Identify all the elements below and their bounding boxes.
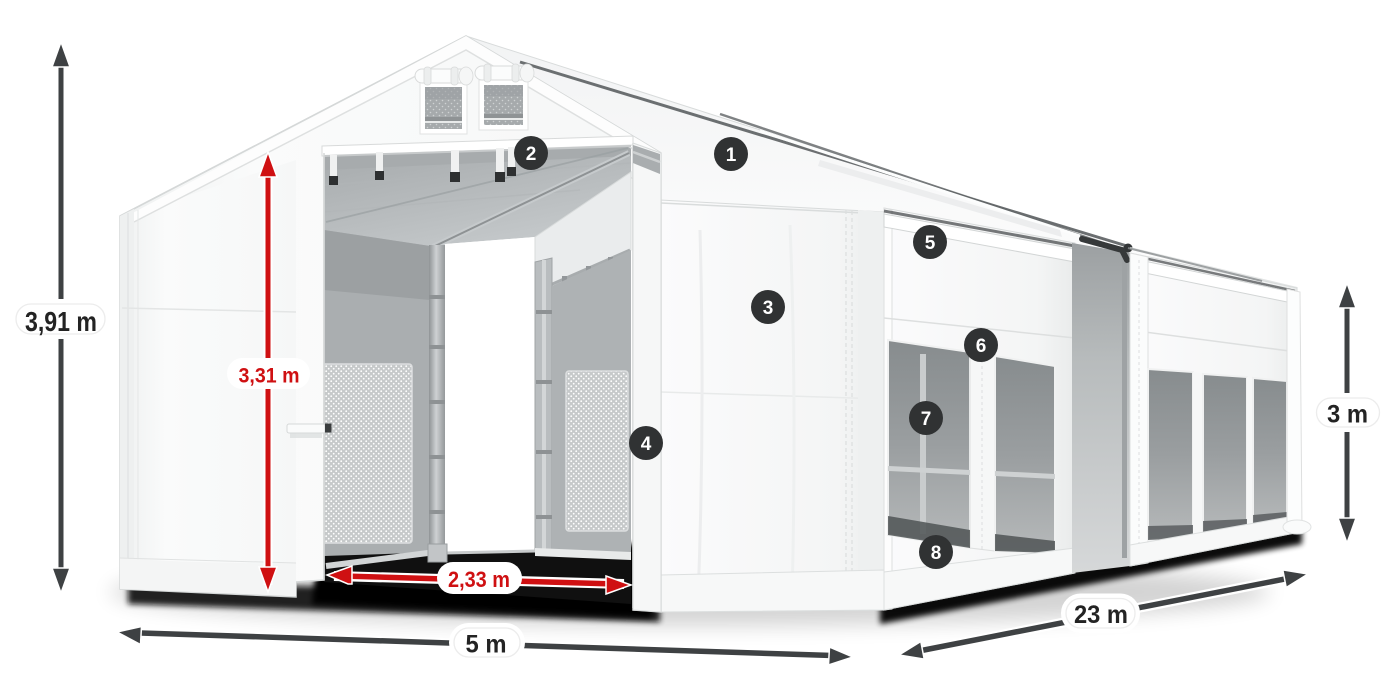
- svg-text:4: 4: [641, 434, 652, 455]
- svg-text:2: 2: [526, 144, 537, 165]
- svg-text:23 m: 23 m: [1074, 601, 1128, 629]
- svg-text:3,91 m: 3,91 m: [25, 306, 97, 337]
- svg-text:3 m: 3 m: [1327, 401, 1368, 429]
- svg-text:3: 3: [763, 298, 774, 319]
- svg-text:5: 5: [925, 233, 936, 254]
- svg-text:6: 6: [976, 336, 987, 357]
- svg-text:5 m: 5 m: [466, 631, 507, 659]
- svg-text:8: 8: [931, 543, 942, 564]
- svg-text:2,33 m: 2,33 m: [448, 567, 510, 592]
- svg-text:7: 7: [921, 409, 932, 430]
- svg-text:1: 1: [726, 145, 737, 166]
- svg-text:3,31 m: 3,31 m: [239, 365, 300, 388]
